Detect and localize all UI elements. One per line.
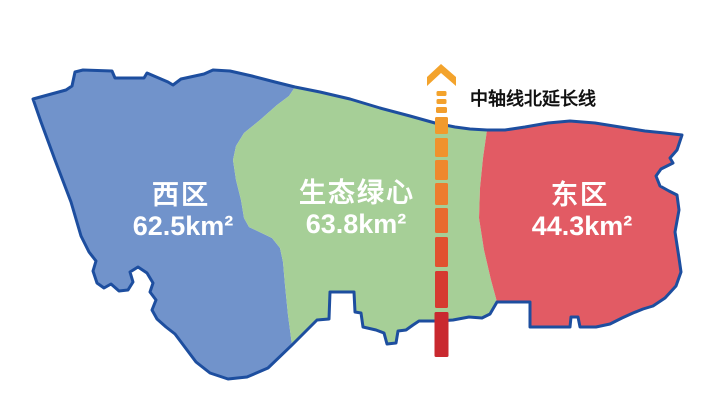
axis-dash bbox=[435, 312, 449, 357]
axis-dash bbox=[437, 91, 447, 96]
north-arrow-icon bbox=[427, 64, 456, 86]
axis-dash bbox=[437, 99, 447, 104]
west-area-label: 62.5km² bbox=[133, 211, 234, 241]
axis-dash bbox=[435, 271, 448, 308]
axis-dash bbox=[435, 160, 448, 180]
green-heart-area-label: 63.8km² bbox=[306, 209, 407, 239]
axis-dash bbox=[435, 237, 448, 267]
east-area-label: 44.3km² bbox=[532, 211, 633, 241]
green-heart-name-label: 生态绿心 bbox=[299, 178, 415, 208]
west-name-label: 西区 bbox=[152, 180, 210, 210]
axis-dash bbox=[435, 117, 448, 134]
axis-dash bbox=[436, 107, 447, 113]
axis-dash bbox=[435, 183, 448, 205]
axis-dash bbox=[435, 208, 448, 233]
east-name-label: 东区 bbox=[551, 179, 609, 210]
axis-label: 中轴线北延长线 bbox=[470, 88, 596, 109]
district-map-canvas: 中轴线北延长线 西区 62.5km² 生态绿心 63.8km² 东区 44.3k… bbox=[0, 0, 718, 407]
axis-dash bbox=[435, 138, 448, 157]
axis-dashes bbox=[435, 91, 449, 357]
district-map-figure: 中轴线北延长线 西区 62.5km² 生态绿心 63.8km² 东区 44.3k… bbox=[0, 0, 718, 407]
